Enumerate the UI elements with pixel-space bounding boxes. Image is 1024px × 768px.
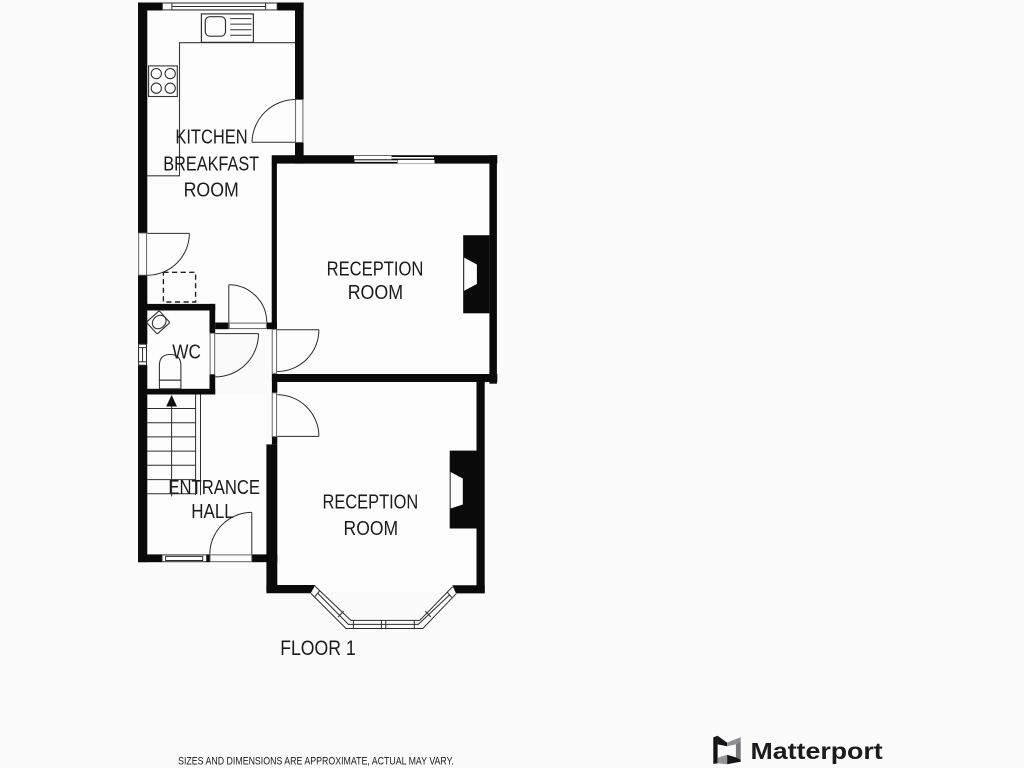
svg-text:FLOOR 1: FLOOR 1 — [280, 637, 356, 660]
svg-text:Matterport: Matterport — [751, 738, 883, 764]
svg-text:ROOM: ROOM — [344, 518, 399, 540]
svg-text:RECEPTION: RECEPTION — [327, 258, 424, 280]
svg-text:ROOM: ROOM — [184, 180, 239, 202]
svg-text:BREAKFAST: BREAKFAST — [163, 153, 259, 175]
svg-text:WC: WC — [172, 342, 201, 364]
svg-text:HALL: HALL — [191, 501, 234, 523]
svg-text:SIZES AND DIMENSIONS ARE APPRO: SIZES AND DIMENSIONS ARE APPROXIMATE, AC… — [178, 756, 454, 768]
svg-text:ENTRANCE: ENTRANCE — [168, 477, 260, 499]
svg-text:RECEPTION: RECEPTION — [323, 492, 419, 514]
svg-text:ROOM: ROOM — [348, 282, 403, 304]
svg-text:KITCHEN: KITCHEN — [175, 127, 247, 149]
